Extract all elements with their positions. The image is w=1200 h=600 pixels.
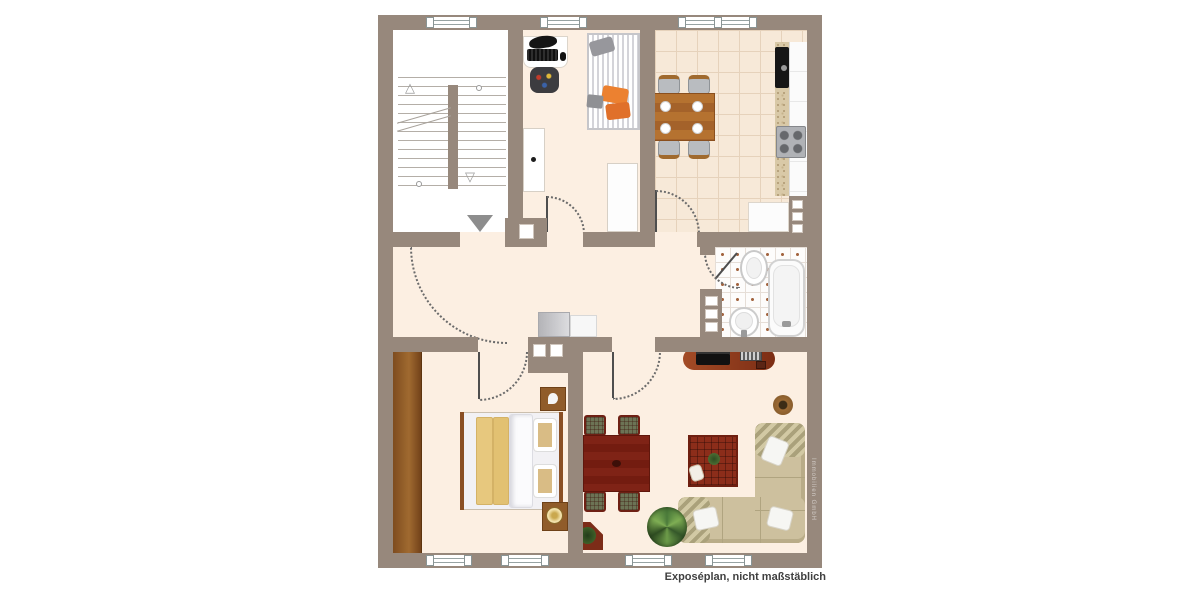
wall-bath-left-top [700,232,715,255]
wall-bedroom-living [568,352,583,553]
floorplan-page: { "caption": "Exposéplan, nicht maßstäbl… [0,0,1200,600]
kitchen-cabinets [789,42,807,196]
daybed-gray-cushion [586,94,603,109]
niche-shelf [792,224,803,233]
wall-hall-bottom-left [393,337,478,352]
kitchen-lower-counter [748,202,789,232]
sofa-seam [722,497,723,543]
table-knot [612,460,621,467]
wall-study-bottom [583,232,655,247]
bathtub-faucet-icon [782,321,791,327]
outer-wall-left [378,15,393,568]
cabinet-handle [531,157,536,162]
white-cabinet [607,163,638,232]
wall-hall-bottom-right [655,337,700,352]
sofa-seam [760,497,761,543]
living-chair [584,491,606,512]
stairs-down-arrow-icon: ▽ [465,170,475,183]
chimney-flue [519,224,534,239]
plate [692,101,703,112]
tv-icon [696,351,730,365]
window [503,555,547,566]
sofa-seam [755,477,805,478]
nightstand-deco [548,393,558,404]
bed-duvet-fold [509,414,533,508]
wall-bath-bottom [700,337,807,352]
hall-sideboard-white [570,315,597,337]
bed-headboard [559,412,563,510]
bathtub-inner [773,265,800,327]
bath-niche-shelf [705,322,718,332]
kitchen-chair [658,139,680,159]
sink-faucet-icon [781,65,787,71]
living-chair [618,491,640,512]
kitchen-table [650,93,715,141]
bath-niche-shelf [705,296,718,306]
keyboard-icon [527,49,558,61]
chimney-flue [550,344,563,357]
wall-study-kitchen [640,30,655,232]
rug-plant [708,453,720,465]
kitchen-chair [658,75,680,95]
bed-pillow [533,418,557,452]
agency-watermark: Immobilien GmbH [810,458,816,521]
entrance-direction-arrow [467,215,493,232]
daybed-orange-cushion [605,102,631,121]
office-chair [530,67,559,93]
potted-plant [647,507,687,547]
window [428,17,475,28]
stairs-up-arrow-icon: △ [405,81,415,94]
chimney-flue [533,344,546,357]
bed-blanket [476,417,493,505]
toilet-bowl [746,257,762,279]
niche-shelf [792,200,803,209]
wall-stairwell-right [508,30,523,232]
plate [692,123,703,134]
bath-niche-shelf [705,309,718,319]
staircase-divider [448,85,458,189]
handrail-end [416,181,422,187]
plate [660,123,671,134]
window [542,17,585,28]
washbasin-bowl [735,312,753,330]
mouse-icon [560,52,566,61]
floorplan: △ ▽ [378,15,822,568]
window [707,555,750,566]
handrail-end [476,85,482,91]
hall-sideboard-gray [538,312,570,337]
wall-stairwell-bottom [393,232,460,247]
window [680,17,755,28]
plate [660,101,671,112]
stove [776,126,806,158]
kitchen-chair [688,75,710,95]
wall-hall-bottom-mid [568,337,612,352]
bedside-lamp-icon [546,507,563,524]
kitchen-chair [688,139,710,159]
window [627,555,670,566]
plan-caption: Exposéplan, nicht maßstäblich [665,571,826,583]
bed-foot-frame [460,412,464,510]
round-pouf [773,395,793,415]
living-chair [618,415,640,436]
window [428,555,470,566]
sideboard-box [756,361,766,369]
bed-blanket [493,417,509,505]
living-chair [584,415,606,436]
bed-pillow [533,464,557,498]
wardrobe [393,352,422,553]
niche-shelf [792,212,803,221]
